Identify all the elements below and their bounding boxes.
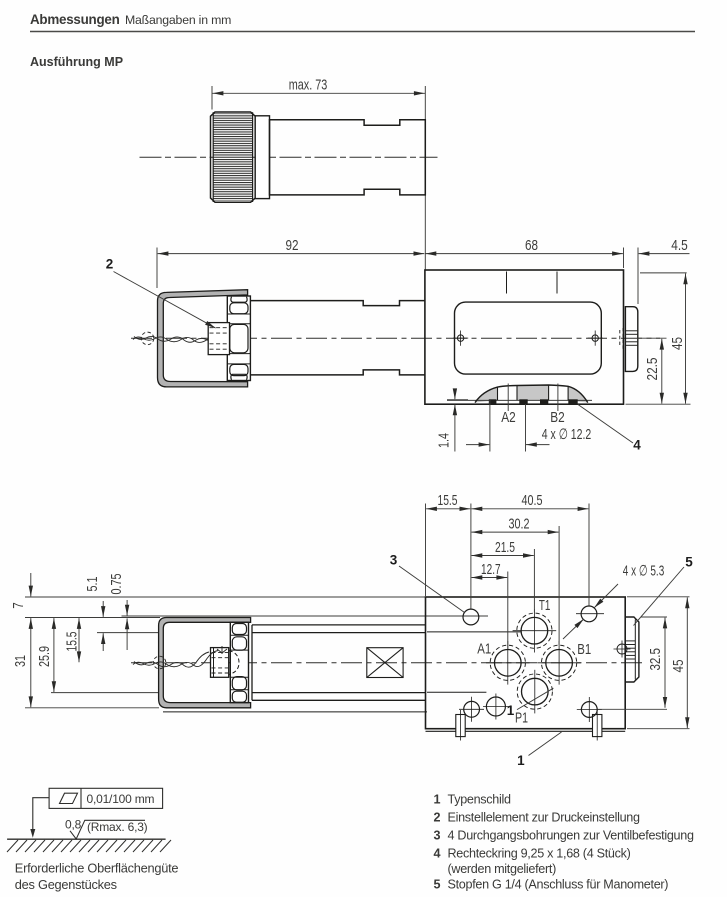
svg-text:A2: A2 — [501, 409, 516, 426]
svg-text:Einstellelement zur Druckeinst: Einstellelement zur Druckeinstellung — [448, 811, 640, 825]
svg-text:45: 45 — [669, 337, 686, 350]
svg-text:45: 45 — [670, 660, 687, 673]
svg-text:des Gegenstückes: des Gegenstückes — [15, 877, 117, 892]
svg-text:1: 1 — [434, 793, 441, 807]
svg-text:Erforderliche Oberflächengüte: Erforderliche Oberflächengüte — [15, 861, 179, 876]
svg-text:A1: A1 — [477, 641, 491, 658]
svg-text:22.5: 22.5 — [644, 358, 661, 381]
svg-text:1: 1 — [517, 753, 525, 768]
svg-text:1: 1 — [507, 703, 515, 718]
svg-text:(Rmax. 6,3): (Rmax. 6,3) — [87, 820, 148, 834]
svg-text:0.75: 0.75 — [108, 574, 125, 595]
svg-text:Typenschild: Typenschild — [448, 793, 512, 807]
svg-text:15.5: 15.5 — [64, 632, 81, 652]
svg-text:5: 5 — [434, 878, 441, 892]
svg-text:Rechteckring 9,25 x 1,68 (4 St: Rechteckring 9,25 x 1,68 (4 Stück) — [448, 847, 631, 861]
svg-text:3: 3 — [434, 829, 441, 843]
svg-text:2: 2 — [434, 811, 441, 825]
svg-text:Maßangaben in mm: Maßangaben in mm — [125, 13, 231, 27]
svg-text:0,8: 0,8 — [65, 818, 82, 832]
svg-text:Abmessungen: Abmessungen — [30, 12, 120, 27]
svg-text:3: 3 — [390, 553, 398, 568]
svg-text:31: 31 — [12, 655, 29, 667]
svg-text:15.5: 15.5 — [438, 492, 458, 509]
svg-text:4: 4 — [434, 847, 441, 861]
svg-text:(werden mitgeliefert): (werden mitgeliefert) — [448, 862, 557, 876]
svg-text:12.7: 12.7 — [481, 561, 501, 578]
svg-text:4 Durchgangsbohrungen zur Vent: 4 Durchgangsbohrungen zur Ventilbefestig… — [448, 829, 694, 843]
svg-text:4 x ∅ 12.2: 4 x ∅ 12.2 — [542, 426, 592, 443]
svg-text:40.5: 40.5 — [522, 492, 543, 509]
svg-text:0,01/100 mm: 0,01/100 mm — [87, 792, 155, 806]
svg-text:max. 73: max. 73 — [289, 77, 328, 94]
svg-text:92: 92 — [286, 237, 299, 254]
svg-text:B1: B1 — [577, 641, 591, 658]
svg-text:P1: P1 — [515, 710, 528, 727]
svg-text:5.1: 5.1 — [84, 577, 101, 592]
svg-text:21.5: 21.5 — [495, 539, 515, 556]
svg-text:30.2: 30.2 — [509, 515, 530, 532]
svg-text:Stopfen G 1/4 (Anschluss für M: Stopfen G 1/4 (Anschluss für Manometer) — [448, 878, 669, 892]
svg-text:4 x ∅ 5.3: 4 x ∅ 5.3 — [623, 562, 665, 579]
svg-text:4: 4 — [633, 438, 641, 453]
svg-text:4.5: 4.5 — [671, 237, 688, 254]
svg-text:2: 2 — [106, 257, 114, 272]
svg-text:5: 5 — [685, 555, 693, 570]
svg-text:T1: T1 — [539, 597, 551, 614]
svg-text:68: 68 — [525, 237, 538, 254]
svg-text:Ausführung MP: Ausführung MP — [30, 55, 123, 69]
svg-text:7: 7 — [10, 602, 27, 609]
svg-text:32.5: 32.5 — [647, 648, 664, 671]
svg-text:1.4: 1.4 — [435, 433, 452, 448]
svg-text:25.9: 25.9 — [36, 646, 53, 667]
svg-text:B2: B2 — [550, 409, 565, 426]
